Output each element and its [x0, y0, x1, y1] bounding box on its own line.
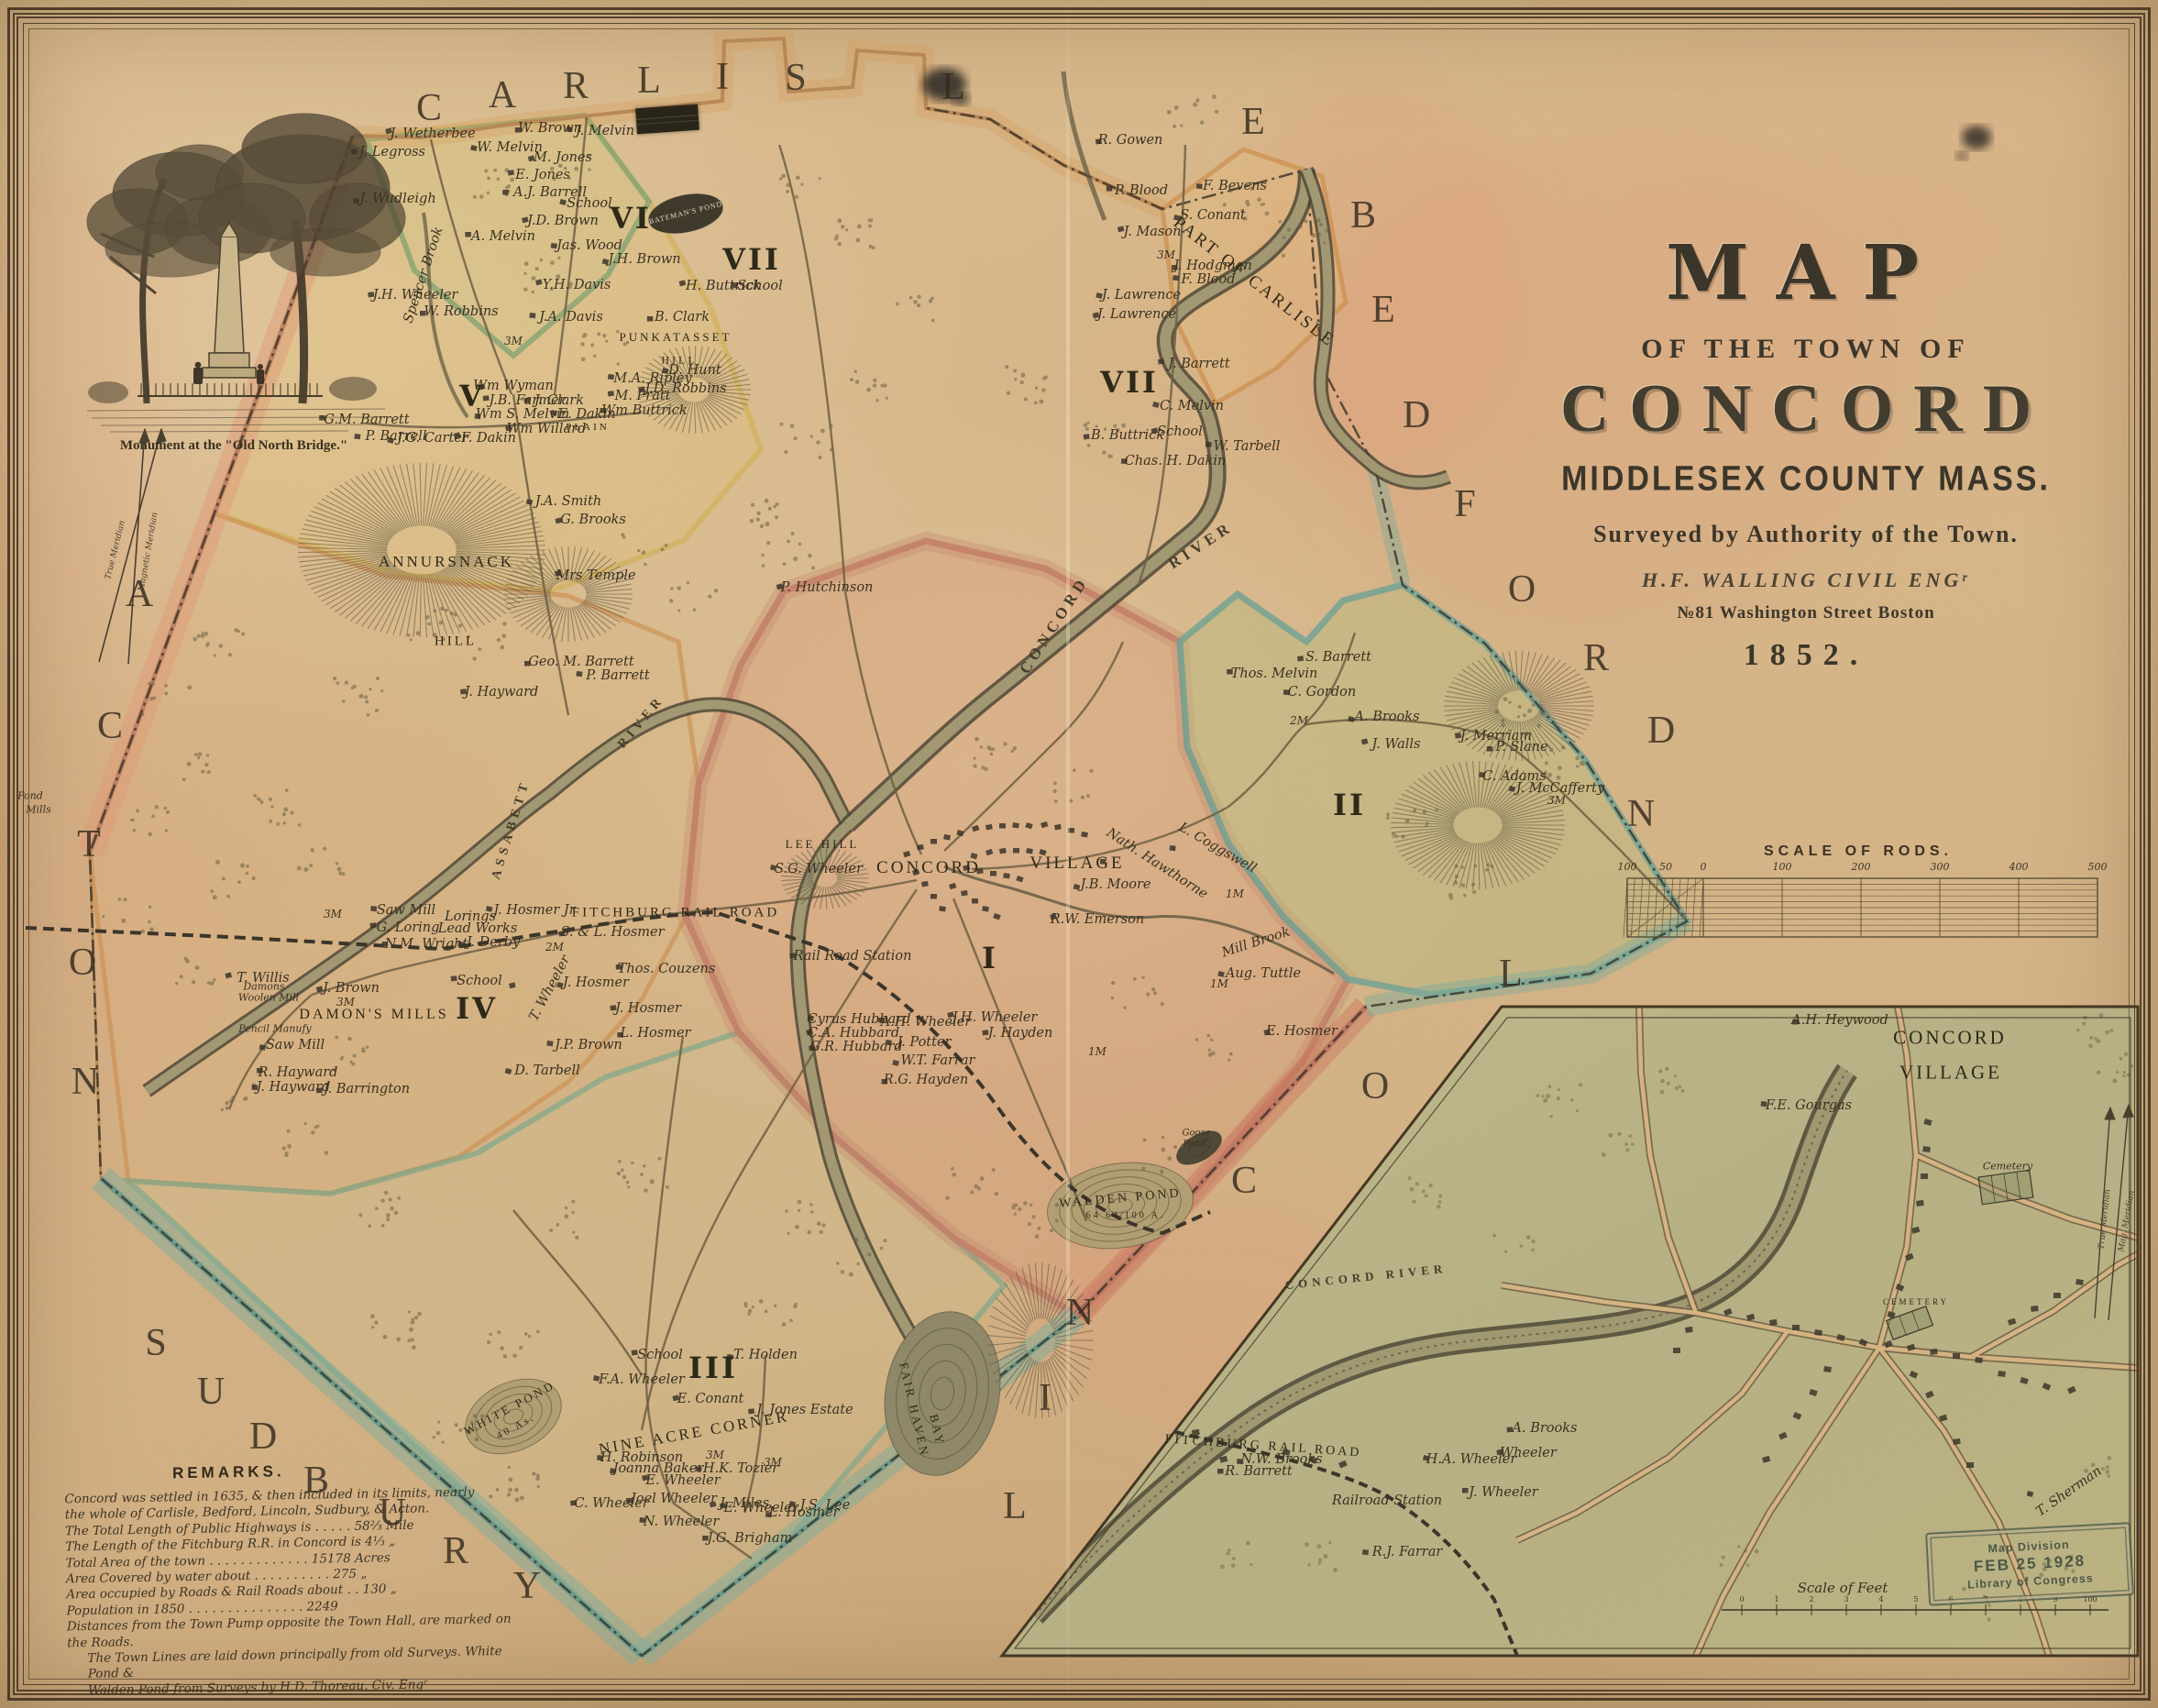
border-town-letter: L [1499, 952, 1523, 996]
map-label: J. Legross [359, 145, 425, 160]
district-numeral: VII [722, 242, 781, 277]
map-label: Joel Wheeler [631, 1492, 717, 1506]
map-sheet: 100500100200300400500 [0, 0, 2158, 1708]
map-label: Jas. Wood [556, 238, 622, 253]
border-town-letter: C [1231, 1159, 1257, 1203]
map-label: R.J. Farrar [1372, 1545, 1443, 1559]
map-label: P. Barrett [586, 668, 649, 683]
map-label: P. Blood [1115, 183, 1168, 198]
border-town-letter: R [563, 64, 589, 108]
map-label: N. Wheeler [644, 1515, 720, 1529]
map-label: Thos. Melvin [1231, 667, 1318, 681]
map-label: F.E. Gourgas [1766, 1098, 1852, 1113]
border-town-letter: R [443, 1529, 468, 1573]
district-numeral: II [1333, 788, 1366, 822]
map-label: T. Holden [733, 1348, 798, 1362]
border-town-letter: D [1647, 709, 1675, 753]
border-town-letter: I [1039, 1376, 1051, 1420]
map-label: 3M [1547, 794, 1566, 807]
map-label: PUNKATASSET [620, 330, 732, 345]
map-label: LEE HILL [786, 837, 860, 852]
map-label: J. Clark [534, 393, 584, 408]
border-town-letter: N [72, 1060, 99, 1104]
map-label: J. Potter [897, 1035, 952, 1050]
map-label: VILLAGE [1029, 854, 1124, 874]
district-numeral: I [982, 941, 998, 975]
map-label: Y.H. Davis [543, 278, 611, 292]
map-label: J. Lawrence [1102, 288, 1181, 303]
map-label: J.B. Moore [1081, 877, 1151, 892]
map-label: Mrs Temple [556, 568, 635, 583]
map-label: A. Brooks [1355, 710, 1420, 724]
map-label: N.W. Brooks [1240, 1452, 1322, 1467]
map-label: W.T. Farrar [901, 1053, 975, 1068]
map-label: S. & L. Hosmer [560, 925, 664, 940]
map-label: B. Buttrick [1091, 428, 1164, 443]
border-town-letter: L [1003, 1484, 1027, 1528]
border-town-letter: U [379, 1491, 406, 1535]
map-label: J. Wudleigh [359, 192, 435, 206]
map-label: Saw Mill [266, 1038, 325, 1052]
map-label: C. Melvin [1160, 399, 1224, 413]
map-label: Goose [1182, 1129, 1210, 1139]
map-label: A.H. Heywood [1791, 1013, 1888, 1028]
map-label: Railroad Station [1332, 1493, 1442, 1508]
border-town-letter: D [1403, 393, 1430, 437]
border-town-letter: L [941, 65, 965, 109]
map-label: M. Jones [534, 150, 592, 165]
border-town-letter: E [1241, 100, 1265, 144]
map-label: Chas. H. Dakin [1125, 454, 1227, 468]
border-town-letter: F [1454, 482, 1475, 526]
border-town-letter: R [1583, 636, 1609, 680]
map-label: J. Barrington [324, 1082, 410, 1096]
map-label: J.D. Brown [527, 214, 599, 228]
border-town-letter: Y [513, 1564, 541, 1608]
border-town-letter: D [249, 1415, 277, 1459]
remarks-block: REMARKS. Concord was settled in 1635, & … [64, 1459, 526, 1700]
map-label: J.H. Brown [608, 252, 680, 267]
map-label: J. Hayward [257, 1080, 331, 1095]
map-label: 1M [1088, 1045, 1107, 1058]
border-town-letter: I [716, 55, 729, 99]
map-label: ANNURSNACK [379, 553, 514, 571]
border-town-letter: U [197, 1370, 225, 1414]
map-label: Wheeler [1500, 1446, 1557, 1460]
title-of-the-town-of: OF THE TOWN OF [1503, 334, 2108, 365]
map-label: 64 64⁄100 A. [1086, 1211, 1166, 1221]
border-town-letter: N [1066, 1291, 1094, 1335]
map-label: W. Brown [518, 121, 582, 136]
map-label: Geo. M. Barrett [528, 655, 633, 669]
map-label: 3M [1157, 248, 1175, 261]
map-label: S. Barrett [1305, 650, 1371, 665]
map-label: CONCORD [876, 858, 981, 878]
map-label: F. Bevens [1203, 179, 1267, 193]
map-label: J. Derby [467, 935, 521, 950]
border-town-letter: S [785, 56, 806, 100]
map-label: G. Loring [377, 920, 440, 935]
map-label: Rail Road Station [794, 949, 912, 964]
map-label: J.A. Davis [539, 310, 603, 325]
inset-scale-label: Scale of Feet [1798, 1580, 1888, 1596]
map-label: M. Pratt [614, 389, 670, 403]
border-town-letter: T [77, 822, 101, 866]
map-label: J.H. Wheeler [952, 1010, 1038, 1025]
map-label: J.G. Brigham [708, 1531, 793, 1546]
map-label: J.G. Carter [397, 431, 468, 446]
map-label: 2M [1290, 714, 1308, 727]
map-label: 3M [504, 335, 523, 347]
title-map: MAP [1503, 229, 2108, 317]
map-label: J. Hayden [988, 1026, 1053, 1041]
map-label: E. Hosmer [1266, 1024, 1338, 1039]
map-label: School [567, 196, 612, 211]
map-label: J. Brown [323, 981, 380, 996]
map-label: L. Hosmer [621, 1026, 691, 1041]
district-numeral: VI [610, 201, 652, 236]
map-label: J. Barrett [1168, 357, 1229, 371]
map-label: P. Slane [1495, 740, 1547, 755]
title-county: MIDDLESEX COUNTY MASS. [1503, 459, 2108, 500]
map-label: Woolen Mill [238, 992, 299, 1004]
map-label: PLAIN [566, 422, 609, 433]
map-label: J.P. Brown [555, 1038, 622, 1052]
map-label: School [457, 974, 502, 988]
map-label: J. Melvin [576, 124, 634, 138]
map-label: Pencil Manufy [238, 1023, 311, 1035]
map-label: D. Tarbell [514, 1063, 580, 1078]
map-label: Pond [1183, 1140, 1206, 1150]
map-label: 1M [1210, 977, 1228, 990]
map-label: Mills [26, 804, 50, 816]
map-label: VILLAGE [1899, 1062, 2002, 1085]
title-concord: CONCORD [1503, 370, 2108, 448]
map-label: W. Robbins [424, 304, 498, 319]
map-label: J. Lawrence [1097, 307, 1176, 322]
border-town-letter: L [637, 59, 661, 103]
border-town-letter: O [1361, 1064, 1389, 1108]
title-engineer: H.F. WALLING CIVIL ENGʳ [1503, 568, 2108, 592]
scale-of-rods-title: SCALE OF RODS. [1730, 843, 1987, 860]
district-numeral: VII [1100, 365, 1159, 400]
border-town-letter: B [303, 1459, 329, 1503]
map-label: E. Conant [677, 1392, 744, 1406]
border-town-letter: C [97, 704, 123, 748]
map-label: J. Hosmer [563, 975, 629, 990]
map-label: School [637, 1348, 683, 1362]
map-label: 3M [336, 996, 355, 1008]
map-label: R. Hayward [259, 1065, 338, 1080]
map-label: Thos. Couzens [618, 962, 716, 976]
map-label: G.R. Hubbard [809, 1040, 902, 1054]
district-numeral: IV [456, 991, 498, 1026]
map-label: 1M [1226, 887, 1244, 900]
map-label: DAMON'S MILLS [299, 1007, 448, 1023]
map-label: F.A. Wheeler [599, 1372, 685, 1387]
map-label: CEMETERY [1883, 1297, 1949, 1306]
border-town-letter: B [1350, 193, 1376, 237]
border-town-letter: O [1508, 567, 1536, 612]
library-of-congress-stamp: Map Division FEB 25 1928 Library of Cong… [1925, 1522, 2134, 1606]
map-label: R. Gowen [1098, 133, 1163, 148]
map-label: C. Gordon [1288, 685, 1356, 700]
map-label: 2M [545, 941, 564, 953]
dark-label-patch [635, 105, 699, 135]
map-label: J. Hosmer [615, 1001, 681, 1016]
map-label: Wm S. Melvin [476, 407, 569, 422]
map-label: F. Dakin [461, 431, 516, 446]
map-label: G.M. Barrett [324, 413, 409, 427]
map-label: 3M [764, 1456, 782, 1469]
border-town-letter: E [1371, 288, 1395, 332]
map-label: A. Melvin [471, 229, 535, 244]
map-label: FITCHBURG RAIL ROAD [572, 906, 779, 921]
title-block: MAP OF THE TOWN OF CONCORD MIDDLESEX COU… [1503, 229, 2108, 673]
map-label: J. Hayward [465, 685, 539, 700]
border-town-letter: A [489, 73, 516, 117]
map-label: J. Hosmer Jr [493, 903, 575, 918]
map-label: J.S. Lee [800, 1498, 851, 1513]
border-town-letter: O [69, 941, 96, 985]
border-town-letter: N [1627, 792, 1655, 836]
map-label: Aug. Tuttle [1226, 966, 1301, 981]
map-label: A. Brooks [1513, 1421, 1578, 1436]
map-label: B. Clark [655, 310, 710, 325]
title-surveyed: Surveyed by Authority of the Town. [1503, 521, 2108, 548]
map-label: HILL [661, 354, 697, 368]
map-label: J. Wheeler [1469, 1485, 1537, 1500]
map-label: Cemetery [1983, 1161, 2032, 1173]
map-label: R.W. Emerson [1051, 912, 1144, 927]
map-label: Pond [17, 790, 43, 802]
map-label: N.M. Wright [385, 937, 468, 952]
map-label: 3M [706, 1449, 724, 1461]
title-address: №81 Washington Street Boston [1503, 603, 2108, 623]
border-town-letter: S [145, 1321, 166, 1365]
map-label: W. Tarbell [1214, 439, 1281, 454]
map-label: S.G. Wheeler [775, 862, 863, 876]
map-label: J.A. Smith [535, 494, 601, 509]
map-label: R.G. Hayden [884, 1073, 969, 1087]
district-numeral: III [688, 1350, 738, 1385]
map-label: School [737, 279, 783, 293]
map-label: 3M [324, 908, 342, 920]
map-label: Saw Mill [377, 903, 435, 918]
map-label: HILL [435, 634, 477, 650]
map-label: G. Brooks [560, 512, 626, 527]
border-town-letter: C [416, 86, 442, 130]
map-label: P. Hutchinson [781, 580, 874, 595]
map-label: Wm Wyman [473, 379, 554, 393]
map-label: Lead Works [438, 921, 518, 936]
map-label: J. Walls [1372, 737, 1421, 752]
map-label: Wm Buttrick [601, 403, 687, 418]
engraving-caption: Monument at the "Old North Bridge." [78, 438, 390, 454]
map-label: CONCORD [1893, 1027, 2007, 1050]
map-label: E. Jones [515, 168, 570, 182]
